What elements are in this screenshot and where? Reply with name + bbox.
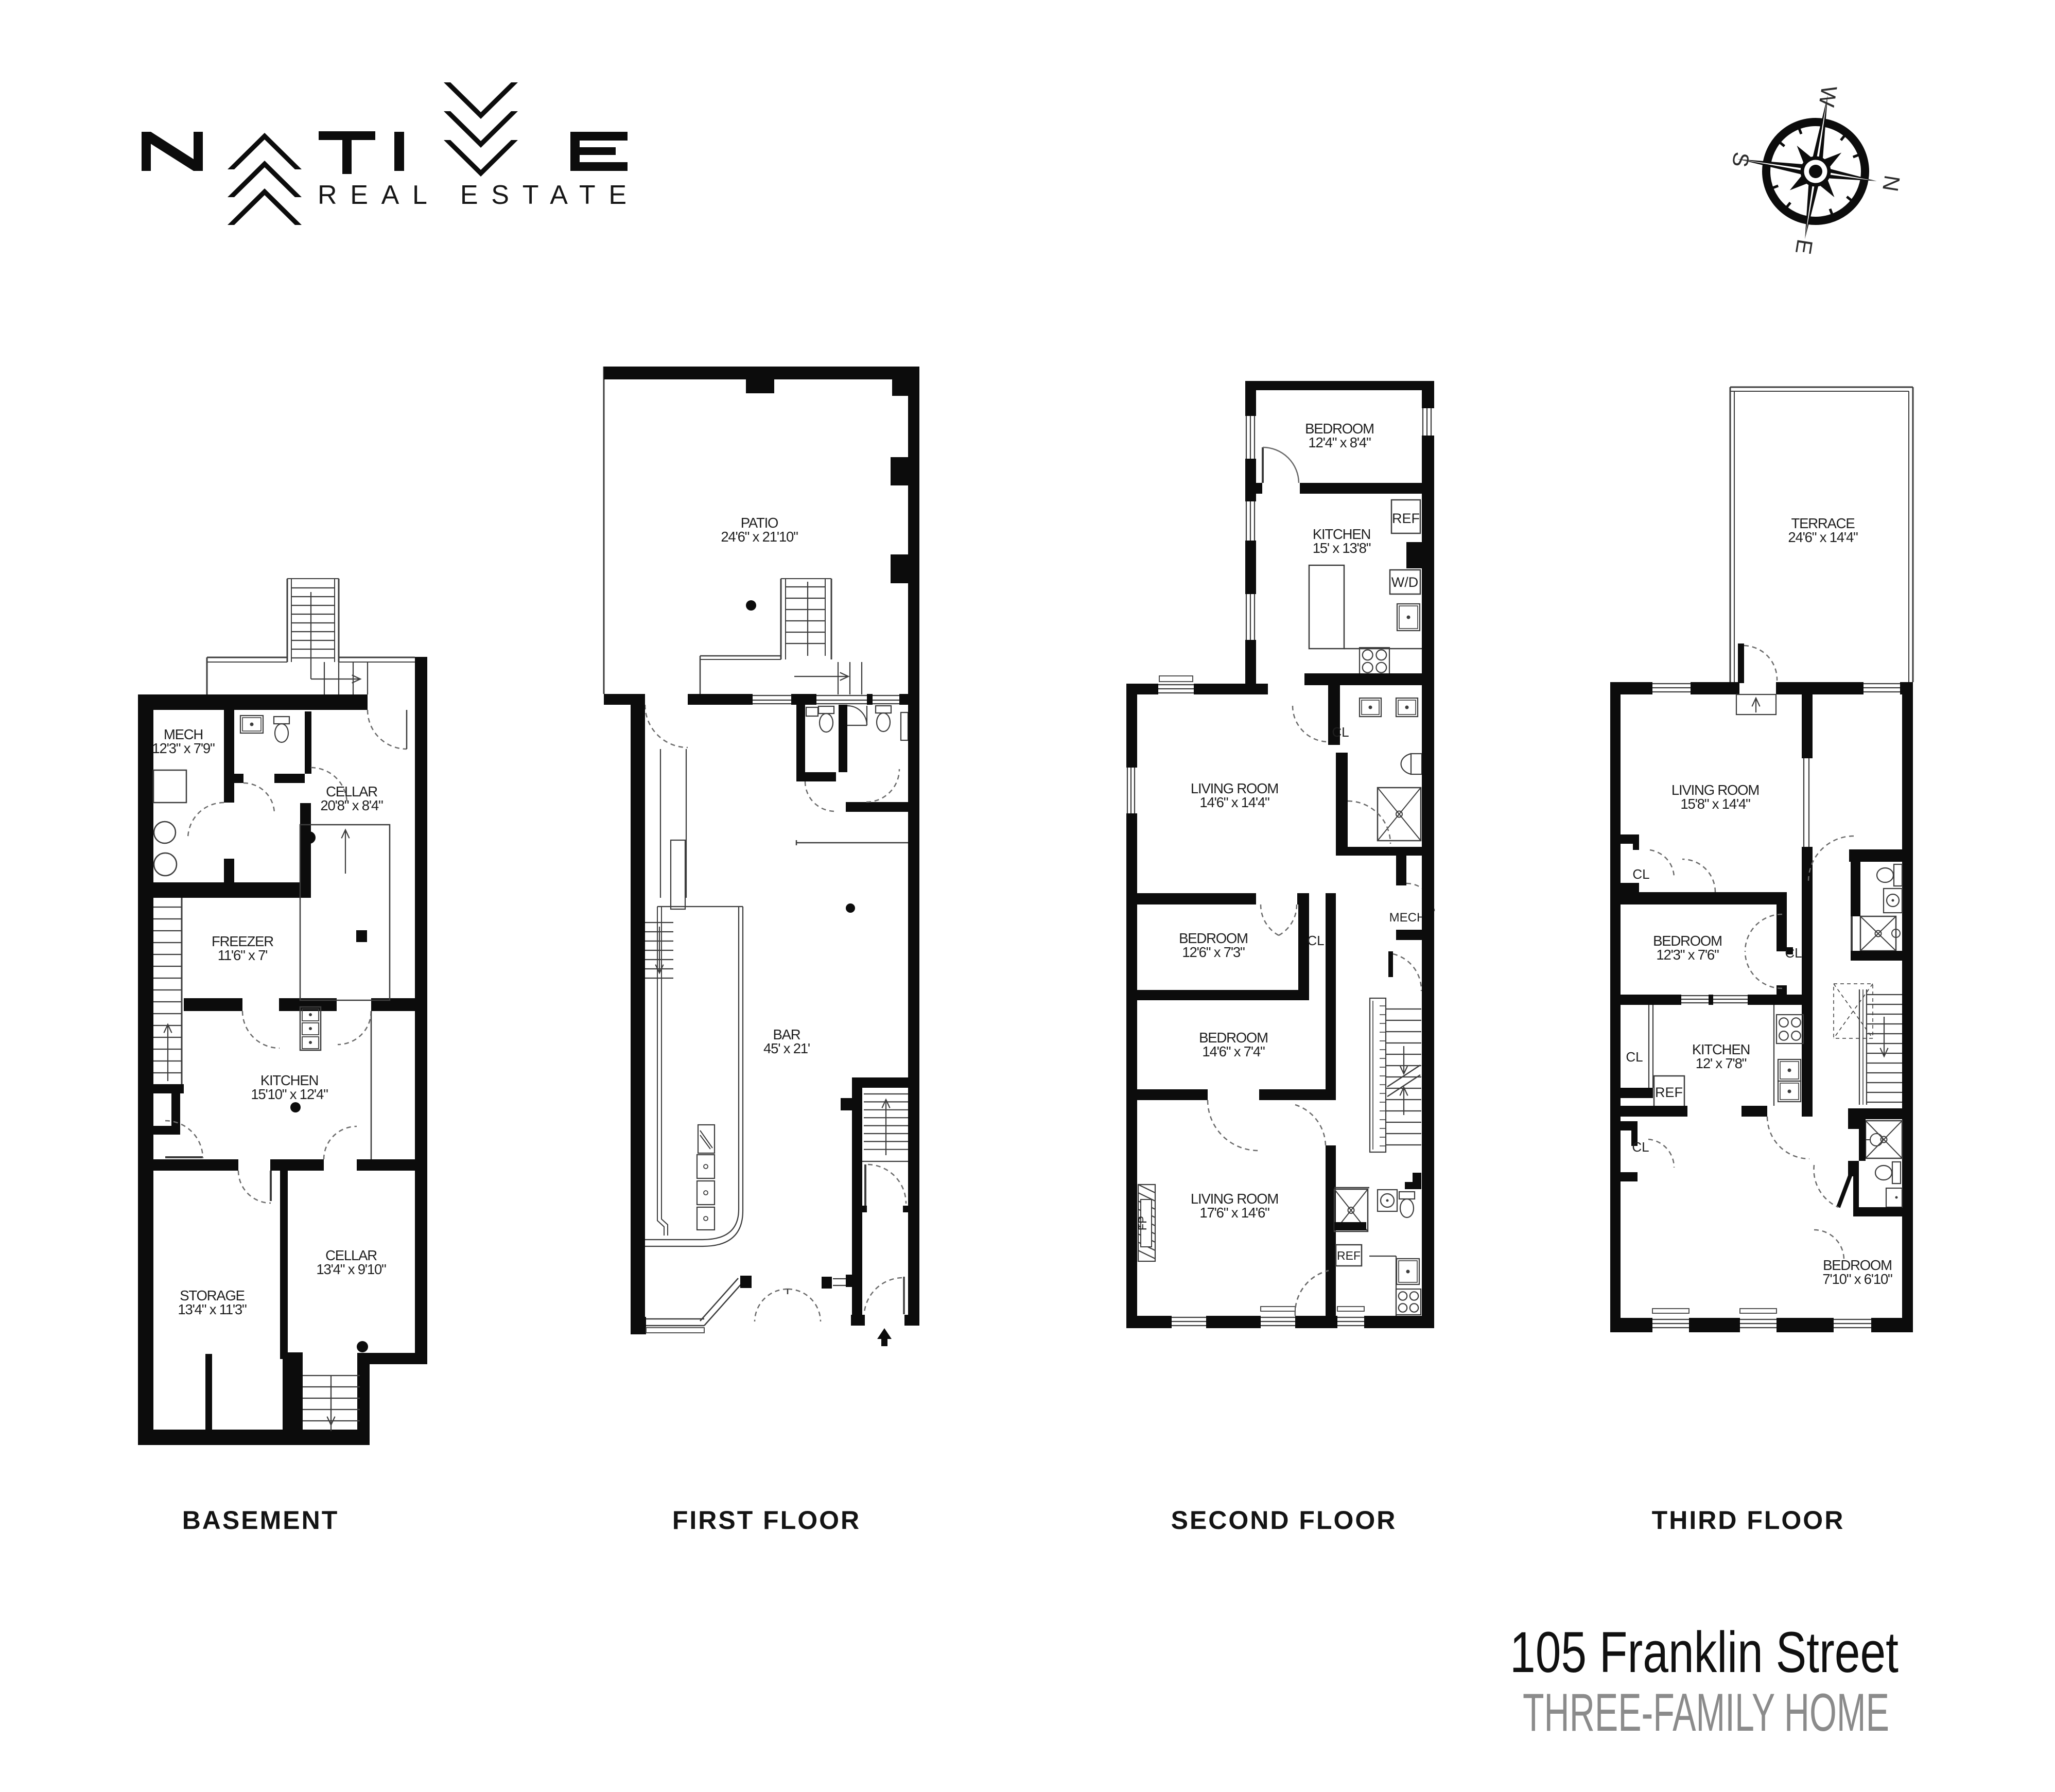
svg-text:MECH: MECH — [1389, 911, 1426, 925]
svg-text:THREE-FAMILY HOME: THREE-FAMILY HOME — [1523, 1683, 1889, 1743]
svg-text:CL: CL — [1626, 1049, 1643, 1065]
svg-text:CL: CL — [1332, 724, 1349, 740]
svg-text:12'6" x 7'3": 12'6" x 7'3" — [1182, 944, 1245, 960]
svg-text:CL: CL — [1307, 933, 1324, 948]
svg-text:45' x 21': 45' x 21' — [763, 1040, 810, 1056]
svg-text:REF: REF — [1392, 511, 1420, 526]
svg-text:12'4" x 8'4": 12'4" x 8'4" — [1308, 434, 1371, 450]
svg-text:CL: CL — [1632, 866, 1649, 882]
svg-text:11'6" x 7': 11'6" x 7' — [218, 947, 267, 963]
svg-text:24'6" x 14'4": 24'6" x 14'4" — [1788, 529, 1858, 545]
svg-text:REF: REF — [1655, 1085, 1683, 1100]
svg-text:14'6" x 14'4": 14'6" x 14'4" — [1199, 794, 1269, 810]
svg-text:15'8" x 14'4": 15'8" x 14'4" — [1680, 796, 1750, 812]
svg-text:15' x 13'8": 15' x 13'8" — [1313, 540, 1371, 556]
svg-text:FP: FP — [1136, 1216, 1149, 1230]
svg-text:7'10" x 6'10": 7'10" x 6'10" — [1822, 1271, 1892, 1287]
svg-text:12'3" x 7'9": 12'3" x 7'9" — [152, 740, 215, 756]
svg-text:W: W — [1814, 84, 1841, 109]
svg-text:14'6" x 7'4": 14'6" x 7'4" — [1202, 1043, 1265, 1059]
svg-text:13'4" x 11'3": 13'4" x 11'3" — [178, 1301, 247, 1317]
svg-text:CL: CL — [1632, 1139, 1649, 1155]
svg-text:105 Franklin Street: 105 Franklin Street — [1510, 1620, 1899, 1684]
svg-text:24'6" x 21'10": 24'6" x 21'10" — [721, 529, 798, 545]
svg-text:15'10" x 12'4": 15'10" x 12'4" — [251, 1086, 328, 1102]
svg-text:REF: REF — [1337, 1249, 1361, 1262]
svg-text:13'4" x 9'10": 13'4" x 9'10" — [316, 1261, 386, 1277]
svg-text:BASEMENT: BASEMENT — [182, 1506, 339, 1535]
svg-text:FIRST FLOOR: FIRST FLOOR — [672, 1506, 861, 1535]
svg-text:17'6" x 14'6": 17'6" x 14'6" — [1199, 1205, 1269, 1221]
svg-text:W/D: W/D — [1391, 575, 1418, 590]
svg-text:THIRD FLOOR: THIRD FLOOR — [1652, 1506, 1845, 1535]
svg-text:12'3" x 7'6": 12'3" x 7'6" — [1656, 947, 1719, 963]
svg-text:12' x 7'8": 12' x 7'8" — [1696, 1055, 1747, 1071]
svg-text:20'8" x 8'4": 20'8" x 8'4" — [320, 797, 383, 813]
svg-text:SECOND FLOOR: SECOND FLOOR — [1171, 1506, 1397, 1535]
svg-text:REAL ESTATE: REAL ESTATE — [318, 180, 626, 210]
